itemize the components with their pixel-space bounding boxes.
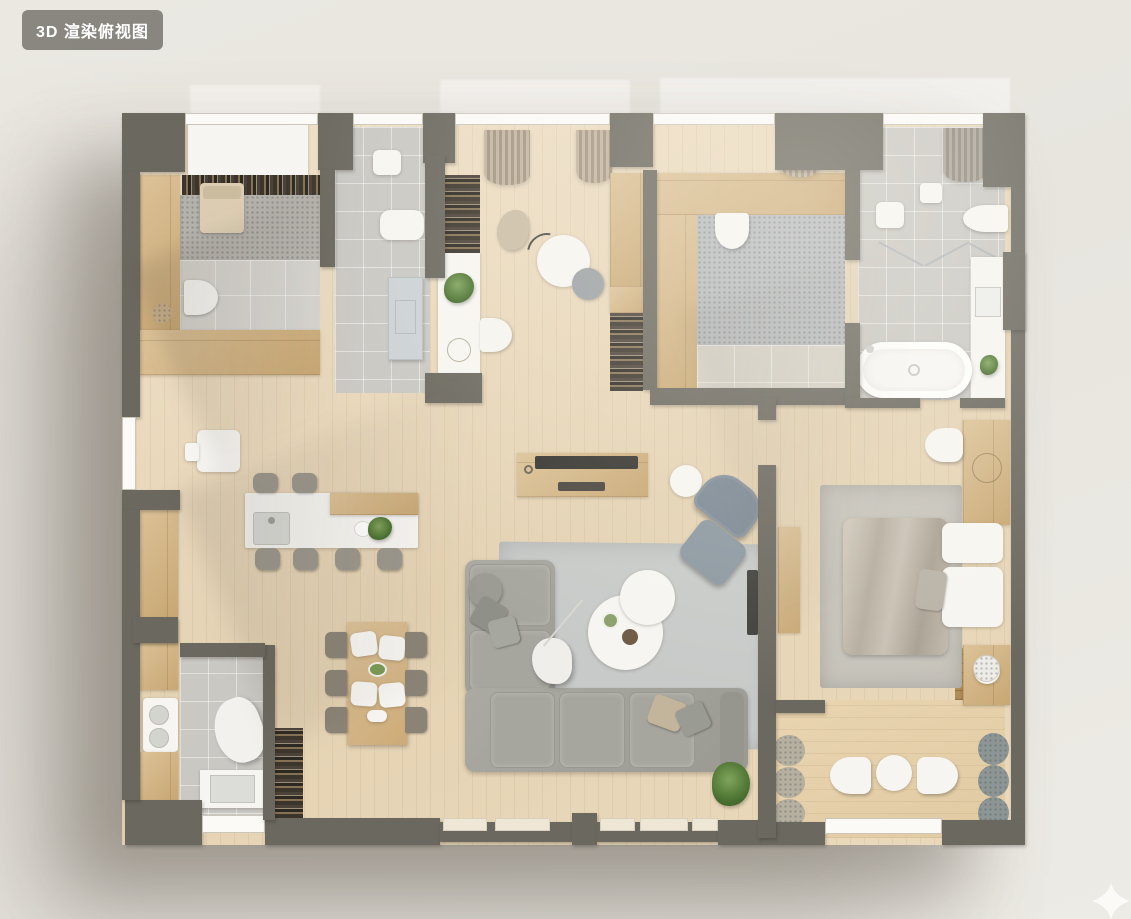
wood-platform xyxy=(655,173,851,215)
bar-stool xyxy=(292,473,317,493)
single-bed xyxy=(200,183,244,233)
counter xyxy=(140,330,320,375)
wall xyxy=(983,113,1025,187)
bookshelf xyxy=(275,728,303,818)
wall xyxy=(572,813,597,845)
plant-cup xyxy=(602,612,619,629)
dining-chair xyxy=(405,707,427,733)
window xyxy=(185,113,318,125)
door-panel xyxy=(395,300,416,334)
dining-chair xyxy=(405,632,427,658)
wall xyxy=(122,113,185,172)
pouf xyxy=(978,765,1009,797)
wall xyxy=(133,617,178,643)
dining-chair xyxy=(325,707,347,733)
pillow xyxy=(942,567,1003,627)
shoe-bench xyxy=(380,210,424,240)
wall xyxy=(758,398,776,420)
apartment-floorplan xyxy=(122,113,1025,845)
dining-chair xyxy=(405,670,427,696)
plate xyxy=(350,681,378,707)
coffee-station xyxy=(197,430,240,472)
entry-door xyxy=(388,277,423,360)
pillow xyxy=(942,523,1003,563)
wood-platform xyxy=(655,215,697,390)
curtain xyxy=(576,130,612,183)
window xyxy=(825,818,942,834)
window-sill xyxy=(495,818,550,831)
pouf xyxy=(978,733,1009,765)
wall-cabinets xyxy=(137,643,178,690)
dining-chair xyxy=(325,632,347,658)
window-sill xyxy=(443,818,487,831)
wall xyxy=(845,323,860,400)
wall xyxy=(318,113,353,170)
closet xyxy=(188,120,308,175)
bar-stool xyxy=(293,548,318,570)
wall-cabinets xyxy=(137,510,178,617)
wall xyxy=(122,510,140,800)
console-shelf xyxy=(558,482,605,491)
vanity-sink xyxy=(975,287,1001,317)
bar-stool xyxy=(377,548,402,570)
curtain xyxy=(484,130,530,185)
faucet xyxy=(268,517,275,524)
sparkle-icon xyxy=(1091,881,1131,919)
wall xyxy=(265,818,440,845)
tub-drain xyxy=(908,364,920,376)
wall xyxy=(1003,252,1025,330)
lounge-chair xyxy=(917,757,958,794)
coffee-table xyxy=(620,570,675,625)
pouf xyxy=(773,767,805,798)
round-table xyxy=(876,755,912,791)
stool xyxy=(925,428,963,462)
dining-chair xyxy=(325,670,347,696)
wardrobe xyxy=(610,287,643,313)
plate xyxy=(378,635,406,662)
wall xyxy=(845,170,860,260)
wall xyxy=(775,113,883,170)
wall xyxy=(758,465,776,838)
wall-hung-toilet xyxy=(963,205,1008,232)
shower-curtain xyxy=(943,128,987,182)
pouf xyxy=(773,735,805,766)
wardrobe xyxy=(610,173,643,287)
door-mat xyxy=(373,150,401,175)
washer-lid xyxy=(149,705,169,725)
tub-faucet xyxy=(866,345,874,353)
cups xyxy=(367,710,387,722)
window-sill xyxy=(692,818,718,831)
wall xyxy=(650,388,852,405)
exterior-balcony xyxy=(190,85,320,115)
console-desk xyxy=(778,527,800,633)
wall xyxy=(263,645,275,820)
wall xyxy=(960,398,1005,408)
wall-tv xyxy=(747,570,758,635)
sofa-cushion xyxy=(490,692,555,768)
hand-basin xyxy=(920,183,942,203)
bar-stool xyxy=(255,548,280,570)
console-ornament xyxy=(524,465,533,474)
wall xyxy=(425,373,482,403)
floor-tiles xyxy=(697,345,845,390)
shower-mat xyxy=(876,202,904,228)
wall xyxy=(718,820,762,845)
bed-pillow xyxy=(203,186,241,199)
basket xyxy=(152,303,172,323)
plate xyxy=(378,682,406,709)
cabinet xyxy=(140,752,178,800)
wall xyxy=(845,398,920,408)
scene: 3D 渲染俯视图 xyxy=(0,0,1131,919)
serving-bowl xyxy=(368,662,387,677)
view-label: 3D 渲染俯视图 xyxy=(36,24,149,41)
sofa-cushion xyxy=(559,692,625,768)
tv xyxy=(535,456,638,469)
washer-lid xyxy=(149,728,169,748)
window-sill xyxy=(600,818,635,831)
bar-stool xyxy=(253,473,278,493)
wall xyxy=(610,113,653,167)
wall xyxy=(180,643,265,657)
panel-ornament xyxy=(972,453,1002,483)
wall xyxy=(942,820,1025,845)
window xyxy=(353,113,423,125)
sofa-armrest xyxy=(720,692,744,768)
marble-side-table xyxy=(973,655,1000,682)
floor-lamp xyxy=(532,638,572,684)
wall xyxy=(776,700,825,713)
wall xyxy=(425,155,445,278)
wall xyxy=(125,800,202,845)
view-label-badge: 3D 渲染俯视图 xyxy=(22,10,163,50)
exterior-balcony xyxy=(660,78,1010,115)
window xyxy=(653,113,775,125)
island-wood-top xyxy=(330,493,418,515)
corner-sofa xyxy=(465,688,748,772)
bowl xyxy=(622,629,638,645)
wall xyxy=(122,490,180,510)
plate xyxy=(349,630,378,657)
vanity xyxy=(971,257,1005,400)
bookshelf xyxy=(610,313,643,391)
window xyxy=(455,113,610,125)
wall xyxy=(122,172,140,417)
task-chair xyxy=(572,268,604,300)
wall xyxy=(320,170,335,267)
window xyxy=(202,815,265,833)
bar-stool xyxy=(335,548,360,570)
lounge-chair xyxy=(830,757,871,794)
wall xyxy=(643,170,657,390)
window xyxy=(122,417,136,490)
cushion xyxy=(914,568,947,612)
exterior-balcony xyxy=(440,80,630,115)
desk-ornament xyxy=(447,338,471,362)
window-sill xyxy=(640,818,688,831)
coffee-station xyxy=(185,443,199,461)
sink xyxy=(210,775,255,803)
